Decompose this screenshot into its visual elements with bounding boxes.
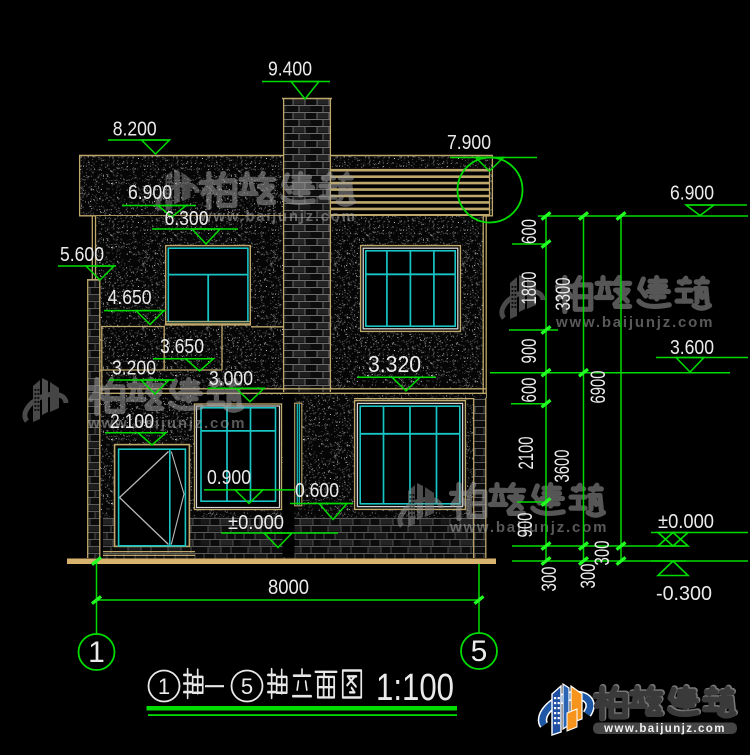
svg-text:6.900: 6.900	[670, 182, 714, 205]
svg-text:300: 300	[538, 567, 561, 592]
svg-text:0.600: 0.600	[295, 479, 339, 502]
svg-text:600: 600	[518, 378, 541, 403]
svg-text:±0.000: ±0.000	[658, 510, 714, 533]
svg-text:6900: 6900	[587, 371, 610, 404]
svg-text:4.650: 4.650	[108, 286, 152, 309]
svg-text:3.600: 3.600	[670, 336, 714, 359]
svg-text:900: 900	[518, 339, 541, 364]
svg-text:±0.000: ±0.000	[228, 511, 284, 534]
svg-text:www.baijunjz.com: www.baijunjz.com	[555, 314, 714, 331]
svg-text:7.900: 7.900	[447, 131, 491, 154]
svg-text:3.650: 3.650	[160, 335, 204, 358]
svg-text:5.600: 5.600	[60, 243, 104, 266]
svg-text:0.900: 0.900	[207, 466, 251, 489]
svg-text:1: 1	[158, 674, 170, 699]
svg-text:300: 300	[591, 541, 614, 566]
svg-text:www.baijunjz.com: www.baijunjz.com	[199, 208, 357, 225]
svg-text:300: 300	[577, 564, 600, 589]
svg-text:2.100: 2.100	[110, 410, 154, 433]
svg-text:1800: 1800	[518, 272, 541, 305]
svg-text:2100: 2100	[515, 437, 538, 470]
svg-text:900: 900	[514, 513, 537, 538]
svg-text:6.900: 6.900	[128, 181, 172, 204]
svg-text:8000: 8000	[268, 576, 309, 599]
svg-text:3300: 3300	[552, 278, 575, 311]
svg-text:www.baijunjz.com: www.baijunjz.com	[603, 723, 726, 735]
svg-text:3.000: 3.000	[209, 367, 253, 390]
svg-text:1:100: 1:100	[376, 667, 454, 709]
svg-text:3.320: 3.320	[368, 351, 421, 377]
svg-text:3600: 3600	[551, 450, 574, 483]
svg-text:-0.300: -0.300	[656, 582, 712, 605]
svg-text:9.400: 9.400	[268, 58, 312, 81]
svg-text:5: 5	[241, 674, 253, 699]
svg-text:3.200: 3.200	[112, 357, 156, 380]
svg-text:5: 5	[471, 635, 488, 668]
svg-text:8.200: 8.200	[113, 118, 157, 141]
svg-text:6.300: 6.300	[165, 207, 209, 230]
svg-text:1: 1	[88, 636, 105, 669]
svg-text:600: 600	[518, 219, 541, 244]
